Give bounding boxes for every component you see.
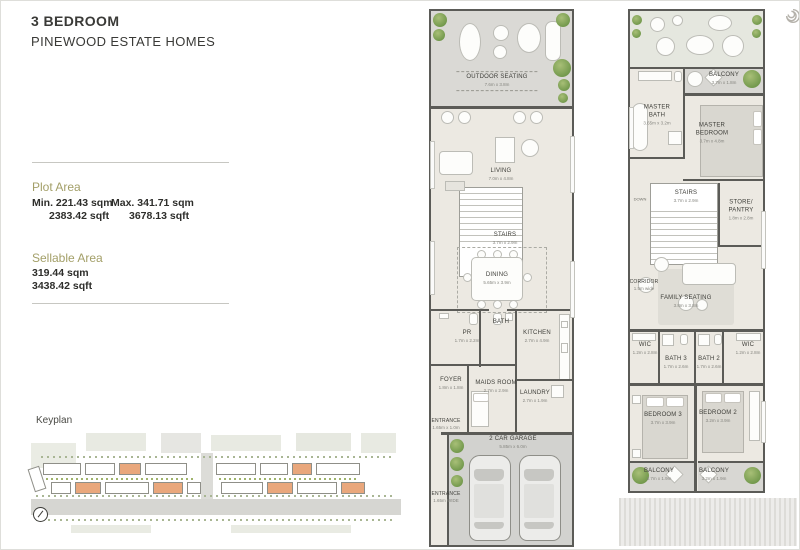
pillow (646, 397, 664, 407)
keyplan-building-highlight (119, 463, 141, 475)
shower (698, 334, 710, 346)
outdoor-chair (493, 25, 509, 41)
car-icon (519, 455, 561, 541)
plot-area-min-sqft: 2383.42 sqft (49, 210, 109, 222)
first-floor-plan: BALCONY3.7m x 1.8m MASTER BATH3.65m x 3.… (628, 9, 765, 493)
wall (515, 309, 517, 386)
ground-floor-plan: OUTDOOR SEATING7.6m x 3.8m LIVING7.0m x … (429, 9, 574, 547)
terrace-table (656, 37, 675, 56)
window (761, 401, 766, 443)
room-label-pr: PR1.7m x 2.2m (455, 330, 480, 344)
shower (668, 131, 682, 145)
keyplan-block (71, 525, 151, 533)
sofa (682, 263, 736, 285)
terrace-table (722, 35, 744, 57)
wall (431, 106, 572, 109)
balcony-table (687, 71, 703, 87)
pergola-hatch (619, 498, 797, 546)
nightstand (632, 449, 641, 458)
room-label-master-bedroom: MASTER BEDROOM3.7m x 4.8m (690, 122, 734, 143)
keyplan-tree-row (36, 495, 396, 497)
plant-icon (451, 475, 463, 487)
wall (698, 461, 763, 463)
sellable-area-sqft: 3438.42 sqft (32, 280, 92, 292)
kitchen-hob (561, 343, 568, 353)
keyplan-building (51, 482, 71, 494)
room-label-kitchen: KITCHEN2.7m x 4.9m (523, 330, 551, 344)
outdoor-chair (493, 45, 507, 59)
keyplan-building (216, 463, 256, 475)
wall (683, 179, 763, 181)
toilet (674, 71, 682, 82)
stair-steps (651, 206, 717, 264)
toilet (714, 334, 722, 345)
keyplan-block (361, 433, 396, 453)
armchair (458, 111, 471, 124)
plant-icon (632, 15, 642, 25)
dining-chair (523, 273, 532, 282)
wall (694, 386, 697, 463)
toilet (469, 313, 478, 325)
keyplan-building-highlight (75, 482, 101, 494)
pillow (666, 397, 684, 407)
page-subtitle: PINEWOOD ESTATE HOMES (31, 34, 215, 49)
keyplan-building (105, 482, 149, 494)
room-label-balcony-top: BALCONY3.7m x 1.8m (709, 72, 739, 86)
room-label-balcony-left: BALCONY3.7m x 1.9m (644, 468, 674, 482)
window (570, 136, 575, 193)
compass-needle-icon (38, 511, 44, 518)
room-label-stairs: STAIRS3.7m x 2.9m (674, 190, 699, 204)
wall (630, 329, 763, 332)
sellable-area-sqm: 319.44 sqm (32, 267, 89, 279)
keyplan-building (85, 463, 115, 475)
wardrobe-rail (632, 333, 656, 341)
pillow (724, 393, 741, 403)
outdoor-table (517, 23, 541, 53)
plant-icon (450, 439, 464, 453)
washing-machine (551, 385, 564, 398)
plot-area-max-sqm: Max. 341.71 sqm (111, 197, 194, 209)
plot-area-max-sqft: 3678.13 sqft (129, 210, 189, 222)
keyplan-building-highlight (341, 482, 365, 494)
sink (439, 313, 449, 319)
page-title: 3 BEDROOM (31, 13, 119, 29)
wardrobe-rail (736, 333, 761, 341)
room-label-dining: DINING5.65m x 3.9m (483, 272, 510, 286)
keyplan-building-highlight (153, 482, 183, 494)
wall (467, 364, 469, 434)
car-windshield (524, 469, 554, 481)
room-label-family-seating: FAMILY SEATING3.8m x 3.8m (660, 295, 711, 309)
plant-icon (744, 467, 761, 484)
room-label-entrance-lower: ENTRANCE1.65m WIDE (431, 491, 460, 503)
room-label-balcony-right: BALCONY3.2m x 1.9m (699, 468, 729, 482)
room-label-master-bath: MASTER BATH3.65m x 3.2m (635, 104, 679, 125)
car-rear-window (474, 522, 504, 529)
wall (441, 432, 572, 435)
dining-chair (493, 300, 502, 309)
room-label-outdoor-seating: OUTDOOR SEATING7.6m x 3.8m (456, 71, 537, 91)
plant-icon (558, 79, 570, 91)
wall (515, 379, 572, 381)
plant-icon (450, 457, 464, 471)
keyplan-building (221, 482, 263, 494)
room-label-bath-3: BATH 31.7m x 2.6m (664, 356, 689, 370)
plant-icon (433, 29, 445, 41)
plot-area-min-sqm: Min. 221.43 sqm (32, 197, 113, 209)
keyplan-building-highlight (267, 482, 293, 494)
wall (718, 183, 720, 245)
wall (683, 67, 685, 157)
keyplan-block (86, 433, 146, 451)
armchair (530, 111, 543, 124)
wall (658, 332, 660, 383)
keyplan-map (31, 433, 401, 547)
divider-line (32, 303, 229, 304)
plant-icon (632, 29, 641, 38)
room-label-bedroom-3: BEDROOM 33.7m x 3.9m (644, 412, 682, 426)
keyplan-building (316, 463, 360, 475)
car-roof (474, 484, 504, 518)
spiral-logo-icon (784, 7, 800, 25)
wall (630, 157, 685, 159)
wall (683, 93, 763, 96)
vanity-counter (638, 71, 672, 81)
toilet (680, 334, 688, 345)
divider-line (32, 162, 229, 163)
car-roof (524, 484, 554, 518)
window (430, 241, 435, 295)
outdoor-table (459, 23, 481, 61)
keyplan-green-row (46, 478, 196, 480)
room-label-store-pantry: STORE/ PANTRY1.8m x 2.8m (723, 199, 759, 220)
room-label-maids-room: MAIDS ROOM2.7m x 2.9m (475, 380, 516, 394)
outdoor-lounger (545, 21, 561, 61)
wall (630, 461, 694, 463)
nightstand (632, 395, 641, 404)
plot-area-heading: Plot Area (32, 180, 81, 194)
keyplan-tree-row (41, 456, 391, 458)
room-label-bath-2: BATH 21.7m x 2.6m (697, 356, 722, 370)
keyplan-building (187, 482, 201, 494)
room-label-stairs: STAIRS3.7m x 2.9m (493, 232, 518, 246)
pillow (753, 111, 762, 127)
window (629, 107, 634, 149)
coffee-table (445, 181, 465, 191)
brochure-page: 3 BEDROOM PINEWOOD ESTATE HOMES Plot Are… (0, 0, 800, 550)
terrace-table (708, 15, 732, 31)
room-label-entrance-upper: ENTRANCE1.65m x 1.0m (431, 418, 460, 430)
keyplan-block (296, 433, 351, 451)
room-label-laundry: LAUNDRY2.7m x 1.9m (520, 390, 550, 404)
keyplan-green-row (219, 478, 359, 480)
wall (431, 364, 517, 366)
window (761, 211, 766, 269)
pillow (705, 393, 722, 403)
wall (718, 245, 763, 247)
kitchen-sink (561, 321, 568, 328)
plant-icon (743, 70, 761, 88)
terrace-chair (650, 17, 665, 32)
plant-icon (553, 59, 571, 77)
wall (694, 463, 697, 491)
room-label-wic-right: WIC1.2m x 2.8m (736, 342, 761, 356)
pillow (473, 393, 489, 402)
keyplan-building-highlight (292, 463, 312, 475)
keyplan-building (145, 463, 187, 475)
room-label-bedroom-2: BEDROOM 23.2m x 3.9m (699, 410, 737, 424)
compass-icon (33, 507, 48, 522)
terrace-chair (672, 15, 683, 26)
keyplan-building (43, 463, 81, 475)
keyplan-building (297, 482, 337, 494)
plant-icon (558, 93, 568, 103)
dining-chair (509, 300, 518, 309)
plant-icon (433, 13, 447, 27)
keyplan-block (231, 525, 351, 533)
keyplan-heading: Keyplan (36, 415, 72, 426)
window (430, 141, 435, 189)
round-table (521, 139, 539, 157)
armchair (654, 257, 669, 272)
car-icon (469, 455, 511, 541)
room-label-wic-left: WIC1.2m x 2.8m (633, 342, 658, 356)
window (570, 261, 575, 318)
keyplan-block (161, 433, 201, 453)
wall (630, 67, 763, 69)
wall (722, 332, 724, 383)
armchair (441, 111, 454, 124)
wardrobe (749, 391, 760, 441)
sofa (439, 151, 473, 175)
dining-chair (477, 300, 486, 309)
terrace-table (686, 35, 714, 55)
room-label-bath: BATH (493, 319, 509, 327)
pillow (753, 129, 762, 145)
plant-icon (752, 15, 762, 25)
armchair (513, 111, 526, 124)
media-cabinet (495, 137, 515, 163)
plant-icon (556, 13, 570, 27)
keyplan-road-main (31, 499, 401, 515)
sellable-area-heading: Sellable Area (32, 251, 103, 265)
room-label-corridor: CORRIDOR1.5m wide (630, 279, 659, 291)
keyplan-block (211, 435, 281, 451)
keyplan-tree-row (36, 519, 396, 521)
keyplan-road-vertical (201, 453, 213, 501)
stairs-down-label: DOWN (634, 196, 647, 201)
shower (662, 334, 674, 346)
room-label-living: LIVING7.0m x 4.8m (489, 168, 514, 182)
keyplan-building (260, 463, 288, 475)
plant-icon (752, 29, 761, 38)
room-label-garage: 2 CAR GARAGE5.85m x 6.0m (489, 436, 536, 450)
car-rear-window (524, 522, 554, 529)
room-label-foyer: FOYER1.8m x 1.8m (439, 377, 464, 391)
car-windshield (474, 469, 504, 481)
